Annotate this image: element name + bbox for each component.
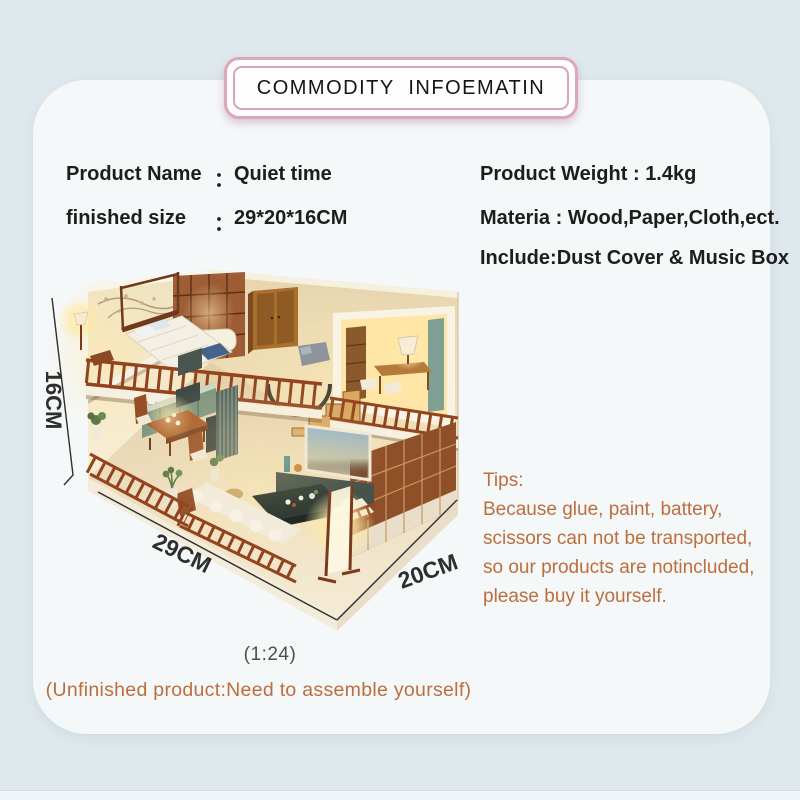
info-row-material: Materia : Wood,Paper,Cloth,ect. <box>480 207 780 230</box>
dimension-height-label: 16CM <box>38 364 66 436</box>
tips-line: scissors can not be transported, <box>483 524 773 553</box>
colon: : <box>550 207 568 230</box>
colon: : <box>627 163 645 186</box>
product-info-sheet: { "page": { "background_color": "#dfe9ed… <box>0 0 800 800</box>
tips-line: Because glue, paint, battery, <box>483 495 773 524</box>
colon: ： <box>214 163 234 192</box>
info-row-product-name: Product Name ： Quiet time <box>66 163 332 192</box>
tips-block: Tips: Because glue, paint, battery, scis… <box>483 466 773 611</box>
product-name-label: Product Name <box>66 163 214 192</box>
include-value: Dust Cover & Music Box <box>557 247 789 270</box>
product-name-value: Quiet time <box>234 163 332 192</box>
title-box-inner: COMMODITY INFOEMATIN <box>233 66 569 110</box>
finished-size-label: finished size <box>66 207 214 236</box>
assembly-note: (Unfinished product:Need to assemble you… <box>36 679 481 702</box>
info-row-weight: Product Weight : 1.4kg <box>480 163 696 186</box>
dollhouse-light-glows <box>130 378 390 518</box>
finished-size-value: 29*20*16CM <box>234 207 347 236</box>
title-box: COMMODITY INFOEMATIN <box>224 57 578 119</box>
colon: ： <box>214 207 234 236</box>
material-label: Materia <box>480 207 550 230</box>
tips-heading: Tips: <box>483 466 773 495</box>
bottom-strip <box>0 790 800 800</box>
scale-note: (1:24) <box>195 644 345 666</box>
include-label: Include <box>480 247 550 270</box>
info-row-finished-size: finished size ： 29*20*16CM <box>66 207 347 236</box>
page-title: COMMODITY INFOEMATIN <box>257 77 545 100</box>
colon: : <box>550 247 557 270</box>
tips-line: so our products are notincluded, <box>483 553 773 582</box>
weight-label: Product Weight <box>480 163 627 186</box>
material-value: Wood,Paper,Cloth,ect. <box>568 207 780 230</box>
tips-line: please buy it yourself. <box>483 582 773 611</box>
info-row-include: Include : Dust Cover & Music Box <box>480 247 789 270</box>
weight-value: 1.4kg <box>645 163 696 186</box>
